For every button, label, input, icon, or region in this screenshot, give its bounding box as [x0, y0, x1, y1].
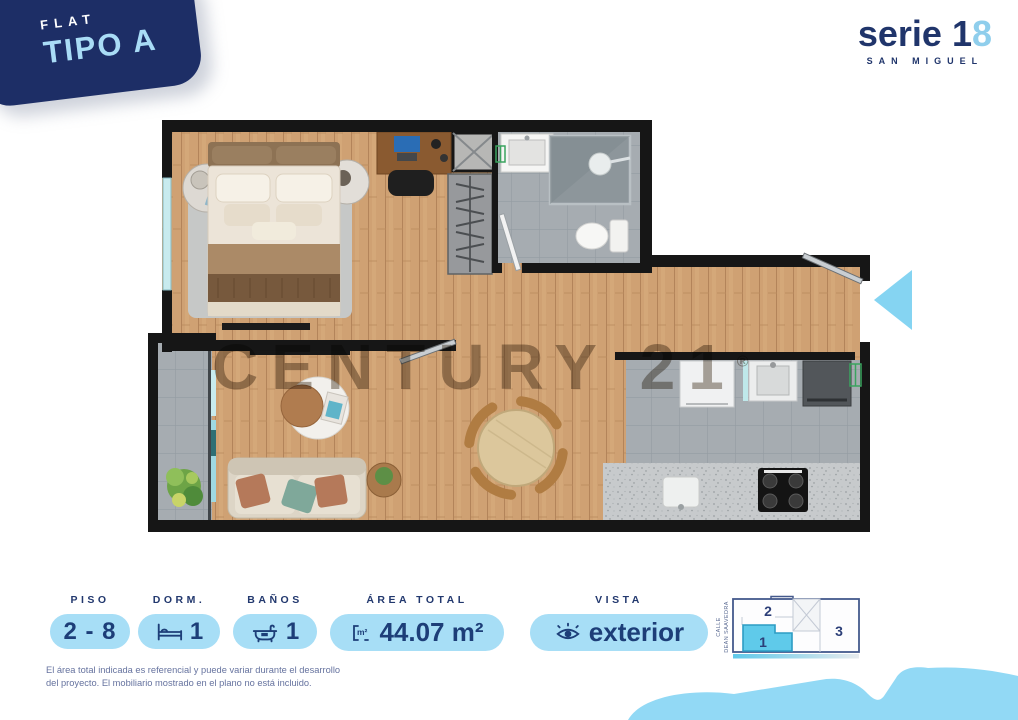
- logo-location: SAN MIGUEL: [858, 56, 992, 66]
- spec-banos-label: BAÑOS: [247, 594, 302, 606]
- spec-banos-pill: 1: [233, 614, 317, 649]
- spec-dorm-pill: 1: [138, 614, 220, 649]
- logo-number-accent: 8: [972, 13, 992, 54]
- spec-area-pill: m² 44.07 m²: [330, 614, 504, 651]
- counter-sink: [663, 477, 699, 507]
- street-label: CALLE DEAN SAAVEDRA: [716, 596, 730, 658]
- floor-plan: [148, 118, 918, 532]
- spec-area-label: ÁREA TOTAL: [366, 594, 467, 606]
- bed-icon: [155, 622, 183, 642]
- m2-icon: m²: [350, 622, 372, 644]
- spec-piso: PISO 2 - 8: [50, 594, 130, 649]
- project-logo: serie 18 SAN MIGUEL: [858, 16, 992, 66]
- spec-area-value: 44.07 m²: [379, 617, 483, 648]
- spec-vista-label: VISTA: [595, 594, 643, 606]
- spec-banos-value: 1: [286, 618, 299, 646]
- logo-number: 1: [952, 13, 972, 54]
- spec-dorm-label: DORM.: [153, 594, 206, 606]
- unit-1-label: 1: [759, 634, 767, 650]
- spec-piso-label: PISO: [70, 594, 109, 606]
- toilet-tank: [610, 220, 628, 252]
- desk-chair: [388, 170, 434, 196]
- entrance-arrow-icon: [874, 270, 912, 330]
- shower-head: [589, 153, 611, 175]
- type-badge: FLAT TIPO A: [0, 0, 204, 109]
- spec-dorm: DORM. 1: [138, 594, 220, 649]
- spec-vista: VISTA exterior: [530, 594, 708, 651]
- balcony-glass: [211, 370, 216, 416]
- spec-vista-pill: exterior: [530, 614, 708, 651]
- pillow: [314, 474, 348, 508]
- flyer-page: FLAT TIPO A serie 18 SAN MIGUEL: [0, 0, 1018, 720]
- plant-small: [375, 467, 393, 485]
- bedroom-tv-console: [222, 323, 310, 330]
- svg-text:m²: m²: [357, 627, 368, 637]
- spec-piso-pill: 2 - 8: [50, 614, 130, 649]
- unit-3-label: 3: [835, 623, 843, 639]
- spec-piso-value: 2 - 8: [63, 618, 116, 646]
- spec-dorm-value: 1: [190, 618, 203, 646]
- laptop: [394, 136, 420, 152]
- decorative-wave: [0, 658, 1018, 720]
- spec-banos: BAÑOS 1: [233, 594, 317, 649]
- bathtub-icon: [251, 621, 279, 643]
- spec-vista-value: exterior: [589, 617, 684, 648]
- toilet: [576, 223, 608, 249]
- fridge: [680, 361, 734, 407]
- kitchen-counter: [603, 463, 860, 520]
- bedroom-window: [163, 178, 171, 290]
- unit-2-label: 2: [764, 603, 772, 619]
- spec-area: ÁREA TOTAL m² 44.07 m²: [330, 594, 504, 651]
- lamp: [191, 171, 209, 189]
- eye-icon: [554, 621, 582, 645]
- logo-brand: serie: [858, 13, 942, 54]
